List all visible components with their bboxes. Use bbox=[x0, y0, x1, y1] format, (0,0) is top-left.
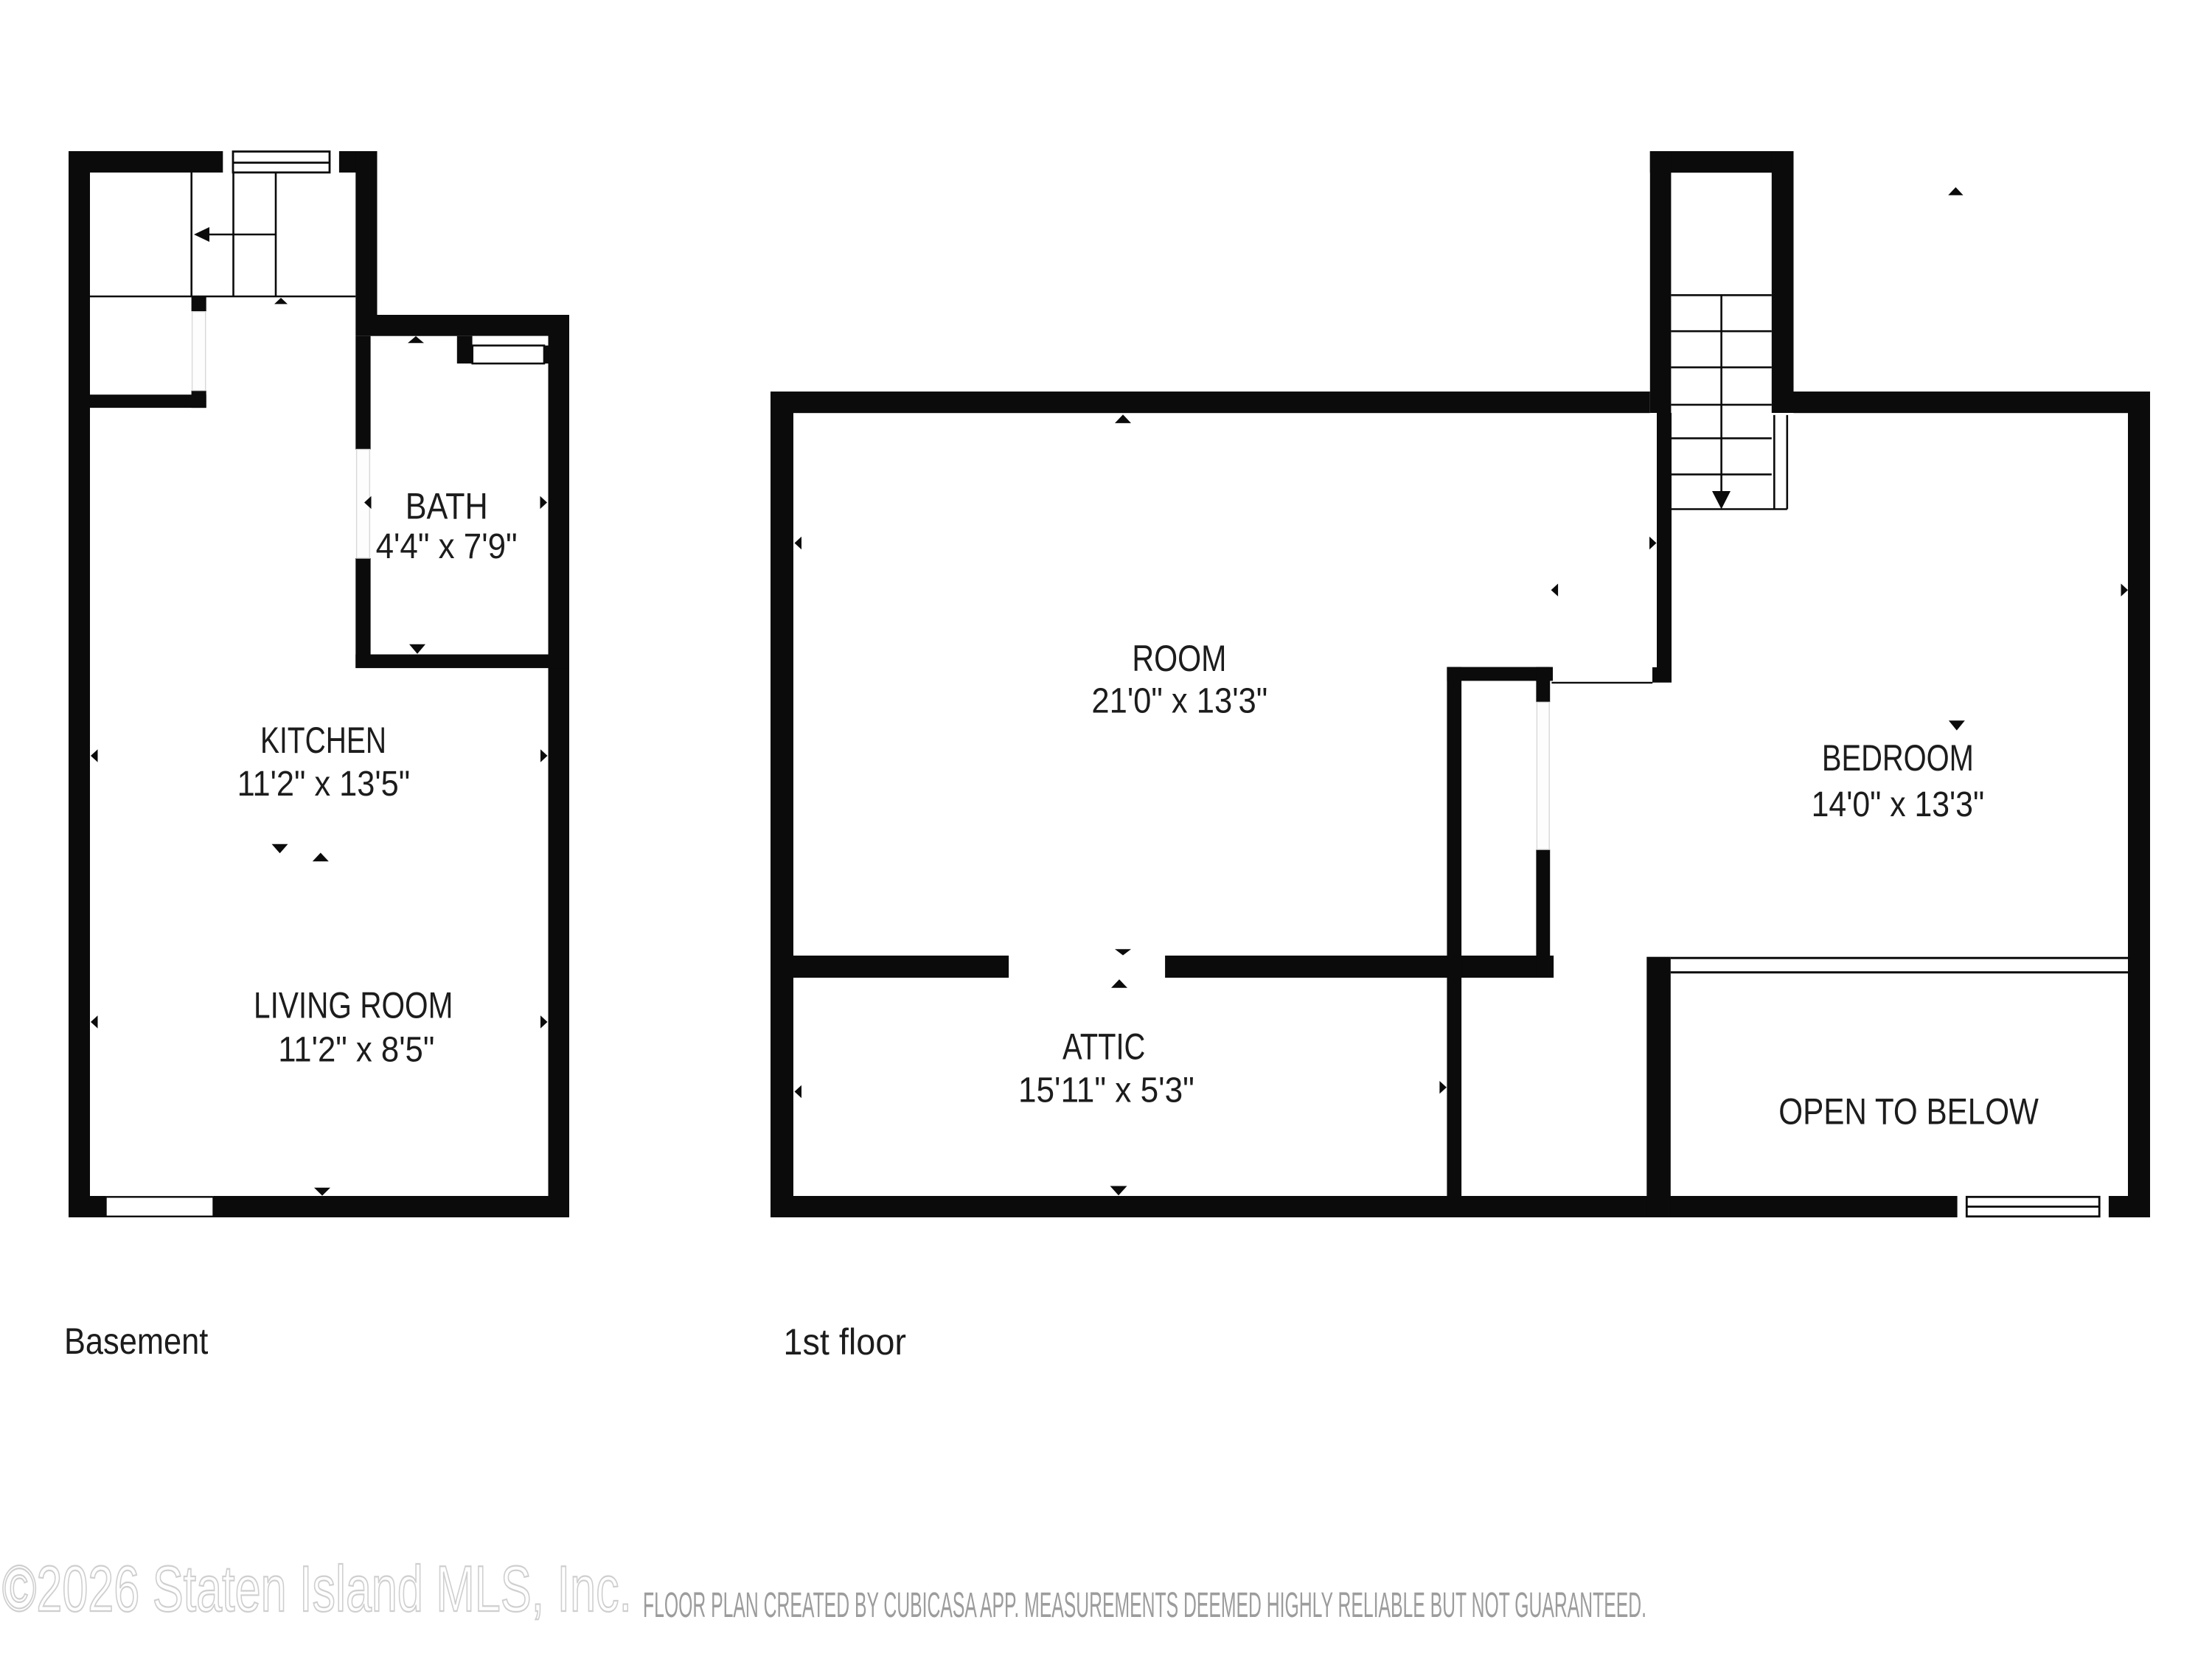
svg-text:1st floor: 1st floor bbox=[783, 1321, 906, 1363]
svg-text:FLOOR PLAN CREATED BY CUBICASA: FLOOR PLAN CREATED BY CUBICASA APP. MEAS… bbox=[643, 1586, 1646, 1625]
svg-text:21'0" x 13'3": 21'0" x 13'3" bbox=[1091, 682, 1267, 721]
svg-text:14'0" x 13'3": 14'0" x 13'3" bbox=[1812, 785, 1985, 824]
svg-text:4'4" x 7'9": 4'4" x 7'9" bbox=[376, 527, 518, 566]
svg-text:LIVING ROOM: LIVING ROOM bbox=[254, 984, 453, 1026]
svg-text:11'2" x 13'5": 11'2" x 13'5" bbox=[237, 765, 411, 804]
svg-text:ATTIC: ATTIC bbox=[1062, 1026, 1145, 1068]
svg-text:KITCHEN: KITCHEN bbox=[260, 720, 386, 761]
svg-text:15'11" x 5'3": 15'11" x 5'3" bbox=[1018, 1071, 1194, 1110]
svg-text:Basement: Basement bbox=[64, 1321, 208, 1362]
svg-text:11'2" x 8'5": 11'2" x 8'5" bbox=[278, 1031, 434, 1070]
svg-text:OPEN TO BELOW: OPEN TO BELOW bbox=[1778, 1091, 2039, 1133]
svg-text:BEDROOM: BEDROOM bbox=[1822, 737, 1974, 779]
svg-text:BATH: BATH bbox=[406, 485, 488, 526]
svg-text:ROOM: ROOM bbox=[1132, 638, 1226, 679]
svg-text:©2026 Staten Island MLS, Inc.: ©2026 Staten Island MLS, Inc. bbox=[2, 1552, 632, 1625]
